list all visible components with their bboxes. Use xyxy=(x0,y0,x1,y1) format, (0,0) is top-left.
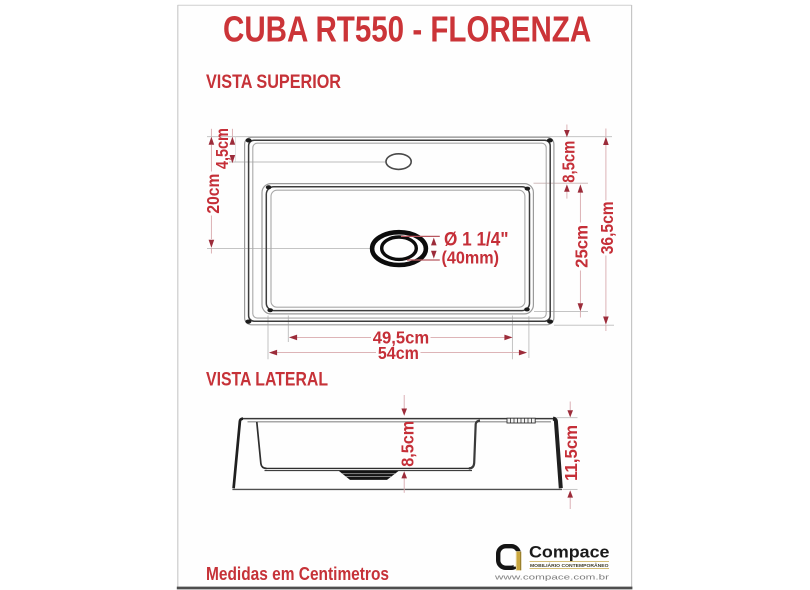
svg-text:CUBA RT550 - FLORENZA: CUBA RT550 - FLORENZA xyxy=(223,9,591,50)
svg-text:4,5cm: 4,5cm xyxy=(212,128,232,169)
svg-text:www.compace.com.br: www.compace.com.br xyxy=(493,573,609,582)
svg-text:8,5cm: 8,5cm xyxy=(397,421,417,467)
svg-text:11,5cm: 11,5cm xyxy=(561,425,581,481)
svg-text:25cm: 25cm xyxy=(572,225,592,268)
svg-text:MOBILIÁRIO CONTEMPORÂNEO: MOBILIÁRIO CONTEMPORÂNEO xyxy=(530,562,609,569)
svg-text:(40mm): (40mm) xyxy=(442,248,500,268)
svg-text:VISTA SUPERIOR: VISTA SUPERIOR xyxy=(206,71,341,93)
svg-text:Compace: Compace xyxy=(529,544,610,562)
svg-text:54cm: 54cm xyxy=(378,343,419,363)
svg-text:VISTA LATERAL: VISTA LATERAL xyxy=(206,369,328,391)
svg-text:8,5cm: 8,5cm xyxy=(558,141,578,183)
svg-text:20cm: 20cm xyxy=(203,174,223,214)
svg-text:Medidas em Centimetros: Medidas em Centimetros xyxy=(206,563,389,584)
svg-text:36,5cm: 36,5cm xyxy=(597,201,617,254)
